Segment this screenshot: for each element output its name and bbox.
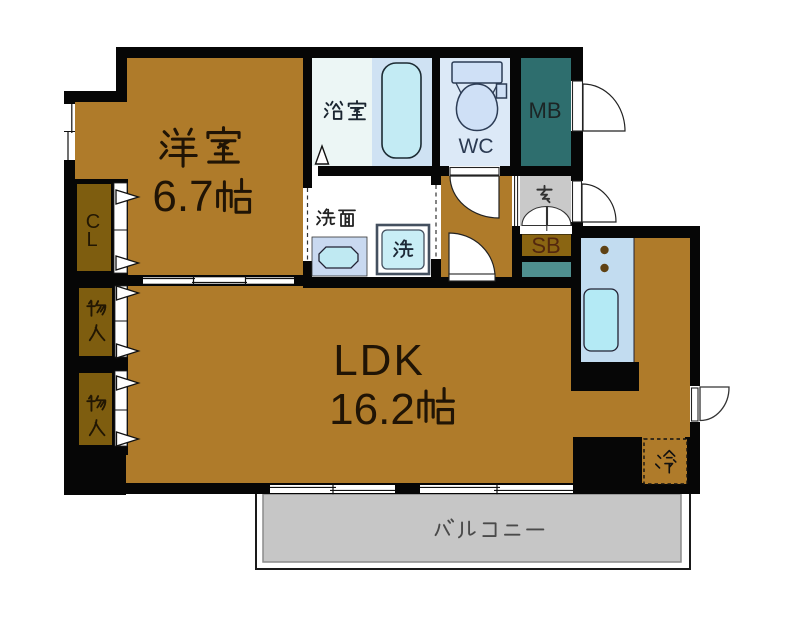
svg-text:SB: SB <box>531 233 560 258</box>
svg-text:6.7: 6.7 <box>152 172 213 221</box>
svg-text:WC: WC <box>459 135 494 158</box>
svg-text:MB: MB <box>529 98 562 123</box>
svg-text:16.2: 16.2 <box>329 385 415 434</box>
svg-text:L: L <box>86 229 97 251</box>
svg-text:LDK: LDK <box>333 336 425 385</box>
